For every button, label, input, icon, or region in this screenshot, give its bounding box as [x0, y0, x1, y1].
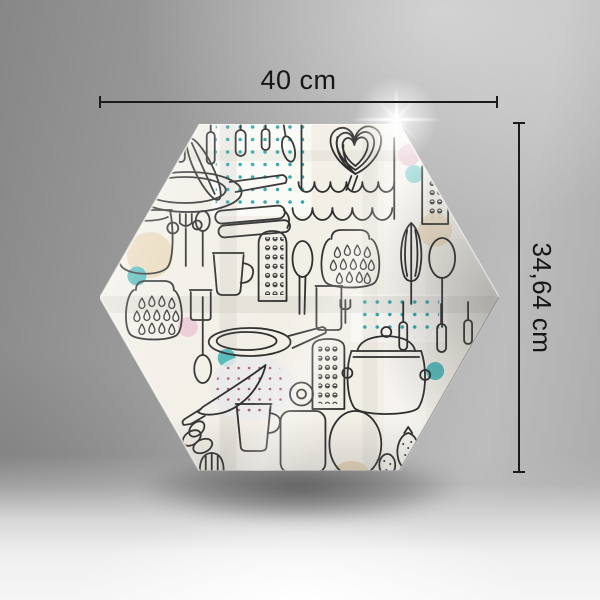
- height-tick-bottom: [513, 471, 525, 473]
- height-dimension: 34,64 cm: [518, 122, 520, 473]
- grater-icon: [259, 231, 287, 301]
- height-tick-top: [513, 122, 525, 124]
- board-drop-shadow: [92, 458, 508, 562]
- width-dimension: 40 cm: [99, 101, 498, 103]
- width-tick-left: [99, 96, 101, 108]
- height-dimension-label: 34,64 cm: [526, 242, 557, 353]
- hexagon-glass-board: [100, 124, 499, 471]
- product-scene: 40 cm 34,64 cm: [0, 0, 600, 600]
- width-tick-right: [496, 96, 498, 108]
- width-dimension-label: 40 cm: [99, 65, 498, 96]
